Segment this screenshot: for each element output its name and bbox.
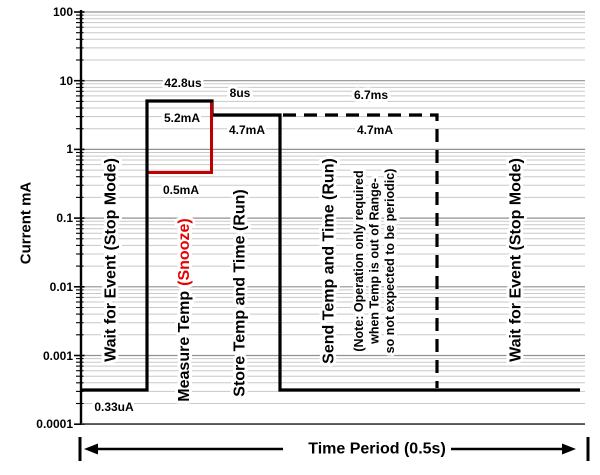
phase-label-measure-red: (Snooze) [176,218,193,286]
y-tick-label-0-001: 0.001 [43,349,73,363]
phase-label-wait-2: Wait for Event (Stop Mode) [508,158,525,362]
y-tick-label-0-1: 0.1 [56,211,73,225]
phase-label-send: Send Temp and Time (Run) [321,158,338,364]
annotation-duration-measure: 42.8us [164,76,202,90]
phase-label-measure-black: Measure Temp [176,291,193,402]
y-tick-label-10: 10 [60,74,74,88]
phase-note-line-3: so not expected to be periodic) [383,169,397,354]
annotation-current-measure-run: 5.2mA [164,111,200,125]
annotation-current-send: 4.7mA [357,123,393,137]
phase-note-line-1: (Note: Operation only required [352,170,366,351]
y-tick-label-1: 1 [66,142,73,156]
annotation-current-snooze: 0.5mA [163,183,199,197]
time-period-left-arrowhead-icon [84,444,98,455]
annotation-duration-store: 8us [230,86,251,100]
annotation-duration-send: 6.7ms [354,88,388,102]
y-tick-label-100: 100 [53,5,73,19]
y-axis-title: Current mA [18,182,35,265]
y-tick-label-0-0001: 0.0001 [36,417,73,431]
y-axis-ticks-group [74,12,85,424]
phase-label-store: Store Temp and Time (Run) [232,189,249,396]
annotation-current-stop: 0.33uA [94,400,134,414]
time-period-right-arrowhead-icon [562,444,576,455]
x-axis-title: Time Period (0.5s) [308,441,446,458]
phase-label-measure: Measure Temp(Snooze) [176,218,193,401]
power-profile-chart: 100 10 1 0.1 0.01 0.001 0.0001 Current m… [0,0,600,470]
annotation-current-store: 4.7mA [229,123,265,137]
phase-note-line-2: when Temp is out of Range- [368,178,382,345]
y-tick-label-0-01: 0.01 [50,280,74,294]
power-profile-figure: 100 10 1 0.1 0.01 0.001 0.0001 Current m… [0,0,600,470]
phase-label-wait-1: Wait for Event (Stop Mode) [103,158,120,362]
